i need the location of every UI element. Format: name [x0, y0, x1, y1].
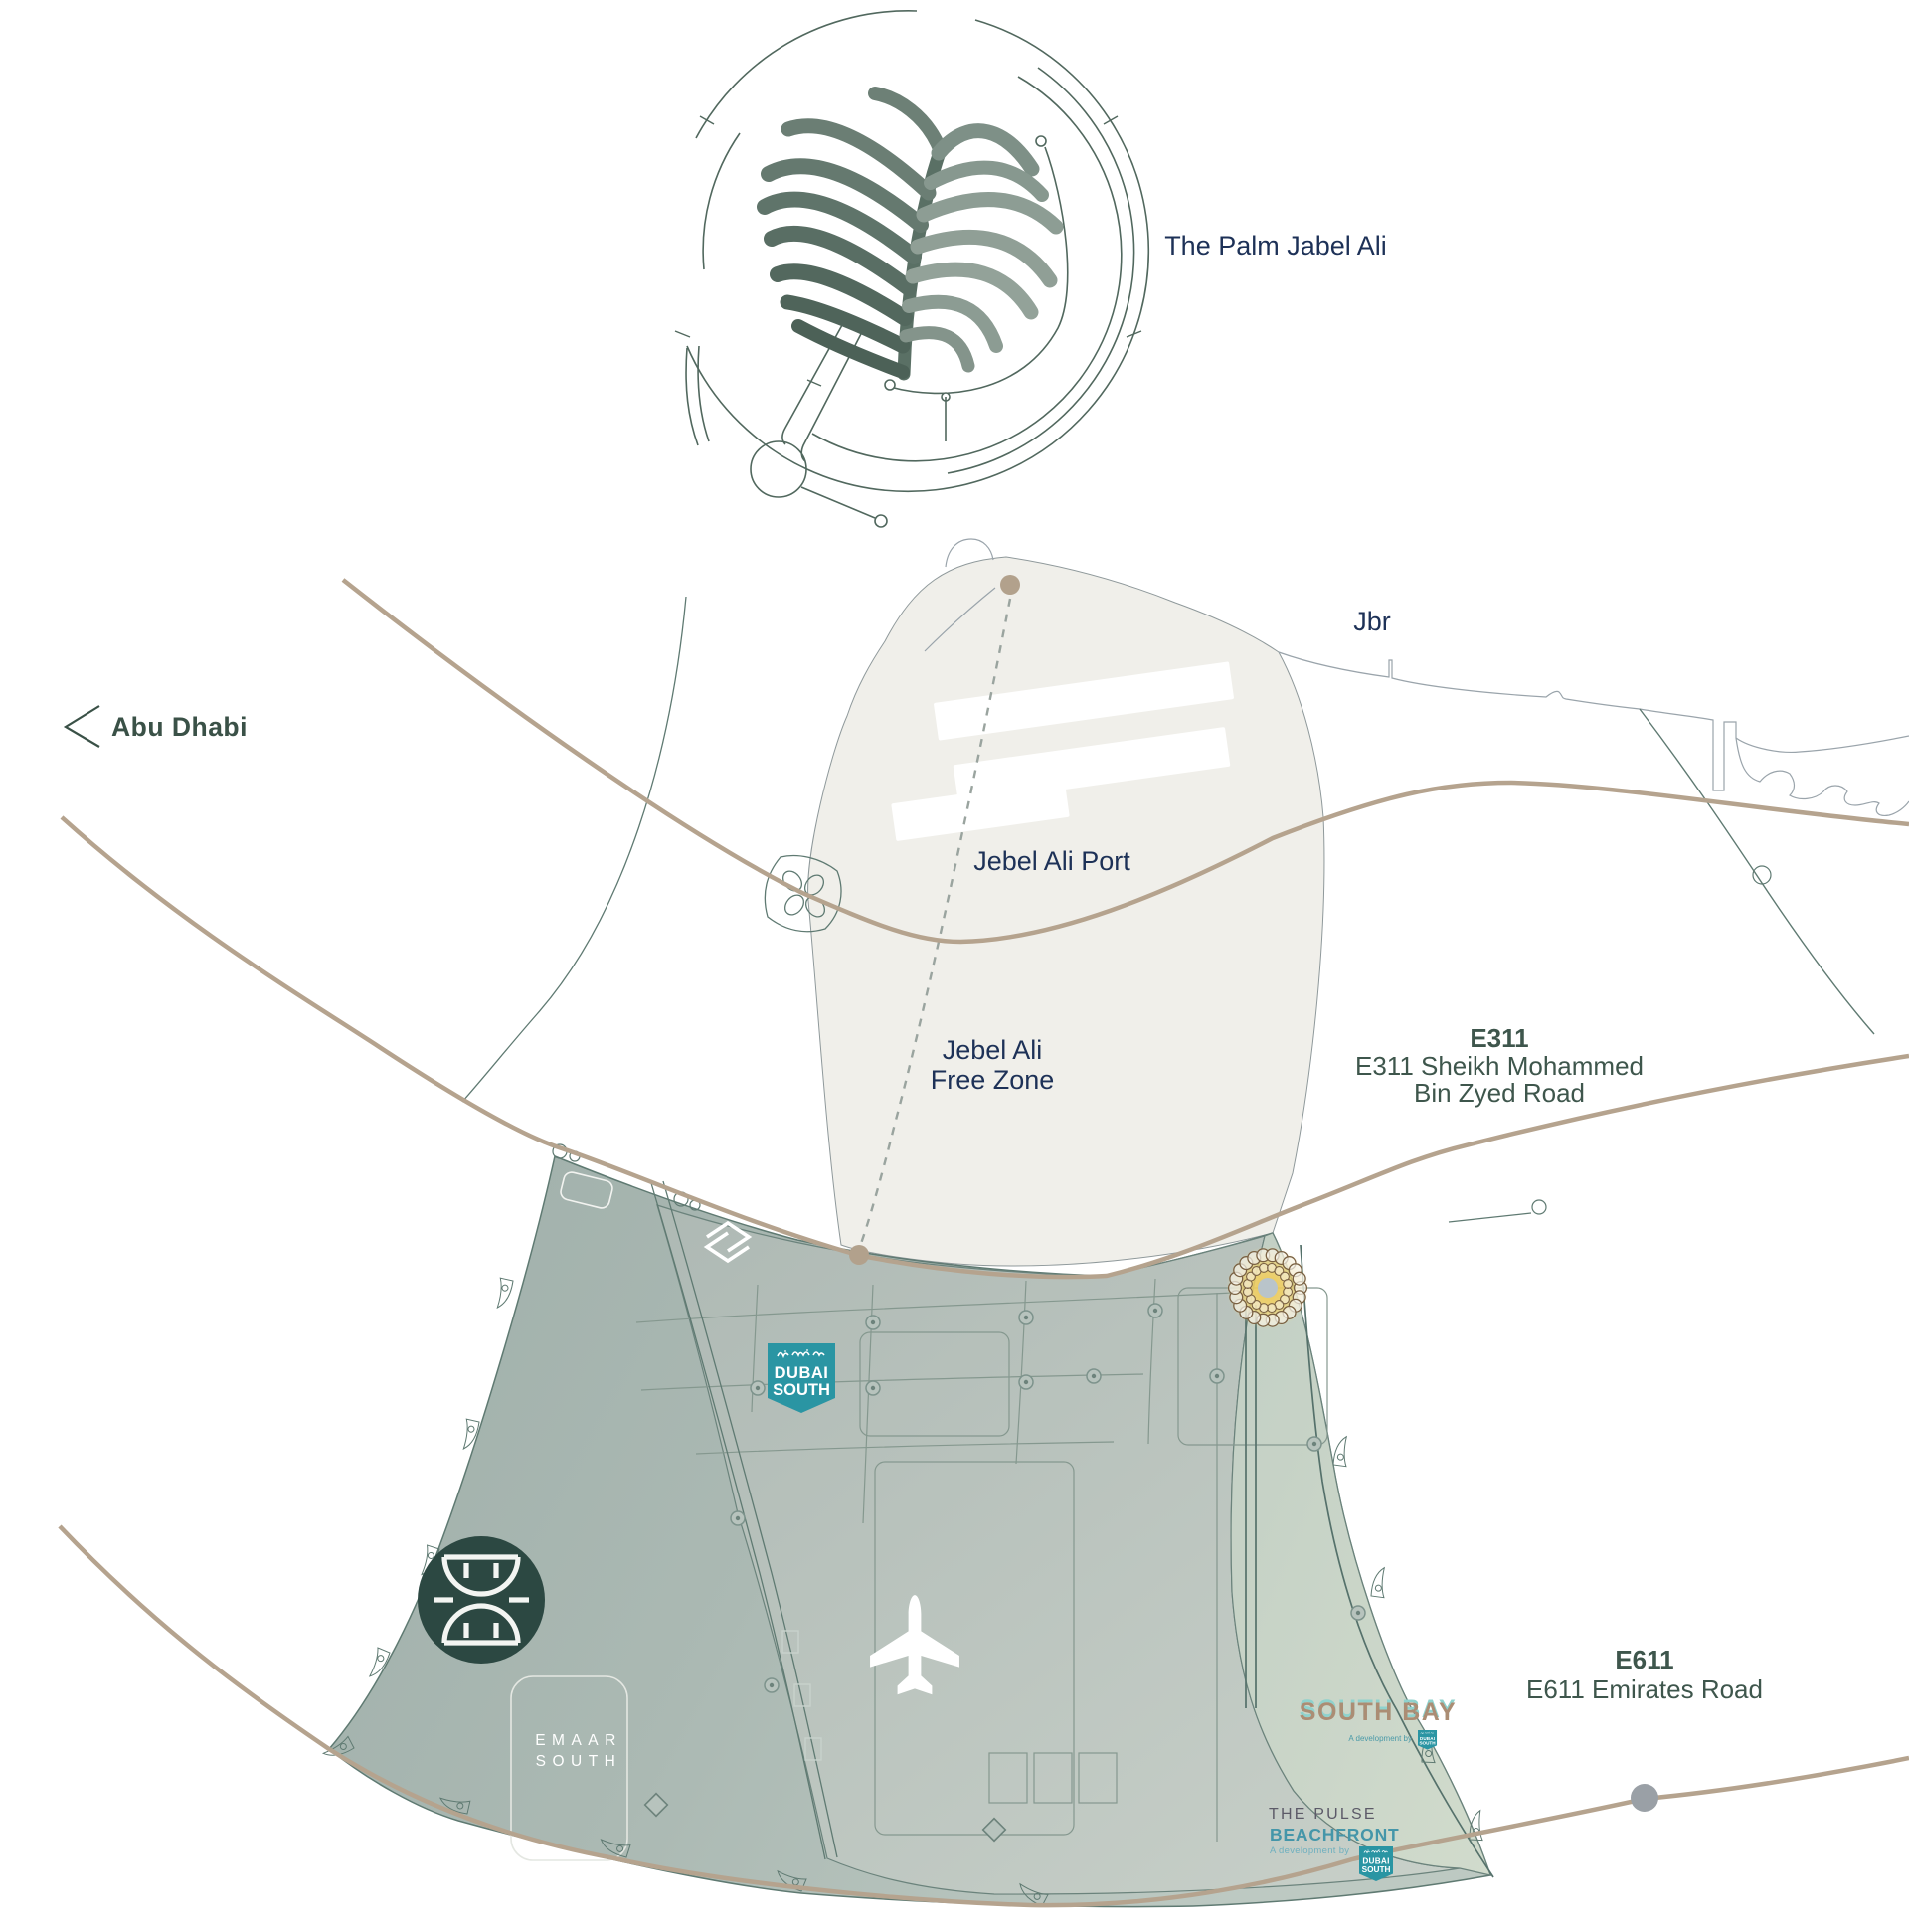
svg-text:SOUTH: SOUTH [1362, 1865, 1391, 1874]
svg-text:E611 Emirates Road: E611 Emirates Road [1526, 1674, 1763, 1704]
svg-text:THE PULSE: THE PULSE [1269, 1806, 1377, 1823]
svg-text:SOUTH: SOUTH [1419, 1741, 1436, 1746]
svg-text:A development by: A development by [1348, 1734, 1412, 1743]
svg-text:The Palm Jabel Ali: The Palm Jabel Ali [1164, 231, 1387, 261]
svg-text:Abu Dhabi: Abu Dhabi [111, 712, 248, 742]
svg-text:BEACHFRONT: BEACHFRONT [1270, 1825, 1400, 1844]
svg-text:SOUTH BAY: SOUTH BAY [1300, 1698, 1457, 1726]
svg-text:E611: E611 [1615, 1645, 1673, 1674]
svg-text:Bin Zyed Road: Bin Zyed Road [1414, 1078, 1585, 1108]
svg-text:EMAAR: EMAAR [535, 1732, 622, 1749]
svg-text:SOUTH: SOUTH [773, 1381, 830, 1399]
svg-text:DUBAI: DUBAI [1362, 1857, 1389, 1866]
svg-text:E311 Sheikh Mohammed: E311 Sheikh Mohammed [1355, 1051, 1644, 1081]
svg-text:Jebel Ali Port: Jebel Ali Port [973, 846, 1130, 876]
svg-text:Jebel Ali: Jebel Ali [943, 1035, 1043, 1065]
svg-text:SOUTH: SOUTH [536, 1753, 622, 1770]
svg-text:A development by: A development by [1270, 1845, 1349, 1856]
svg-text:DUBAI: DUBAI [1420, 1736, 1435, 1741]
svg-text:Free Zone: Free Zone [931, 1065, 1055, 1095]
svg-text:E311: E311 [1470, 1023, 1528, 1053]
svg-text:Jbr: Jbr [1353, 607, 1391, 636]
svg-text:DUBAI: DUBAI [775, 1364, 829, 1382]
